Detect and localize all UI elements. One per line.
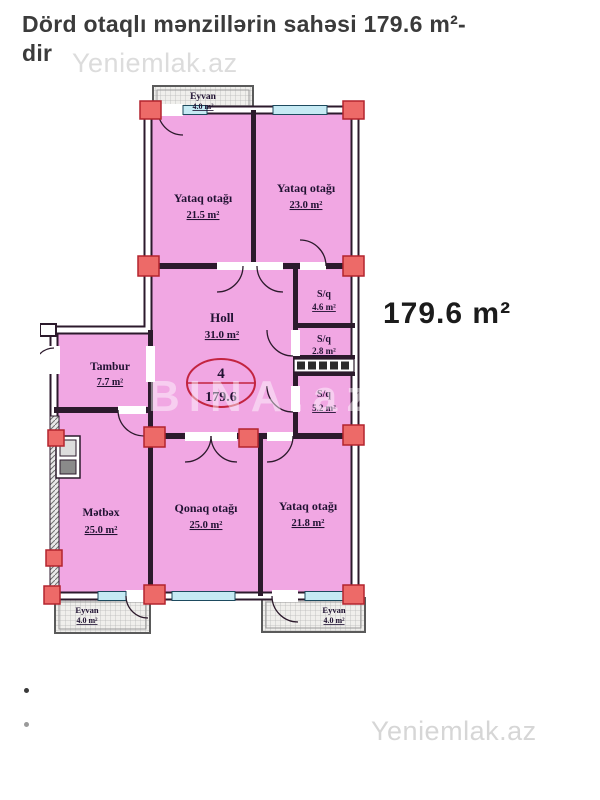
room-area: 23.0 m² bbox=[290, 200, 323, 211]
stamp-rooms-count: 4 bbox=[217, 366, 225, 382]
room-area: 2.8 m² bbox=[312, 346, 336, 356]
room-area: 21.5 m² bbox=[187, 210, 220, 221]
area-stamp: 4 179.6 bbox=[187, 359, 255, 407]
room-name: Qonaq otağı bbox=[174, 501, 238, 515]
room-name: Yataq otağı bbox=[279, 499, 338, 513]
room-name: Yataq otağı bbox=[277, 181, 336, 195]
room-area: 25.0 m² bbox=[85, 525, 118, 536]
floor-plan: 4 179.6 Eyvan 4.0 m² Yataq otağı 21.5 m²… bbox=[40, 80, 370, 640]
room-name: Yataq otağı bbox=[174, 191, 233, 205]
page-title: Dörd otaqlı mənzillərin sahəsi 179.6 m²-… bbox=[22, 10, 587, 69]
page-title-line1: Dörd otaqlı mənzillərin sahəsi 179.6 m²- bbox=[22, 10, 587, 39]
room-area: 5.2 m² bbox=[312, 403, 336, 413]
bullet-dot bbox=[24, 722, 29, 727]
room-area: 7.7 m² bbox=[97, 377, 123, 388]
stamp-total-area: 179.6 bbox=[205, 390, 237, 405]
room-area: 4.0 m² bbox=[192, 102, 214, 111]
room-name: S/q bbox=[317, 334, 331, 345]
room-area: 4.0 m² bbox=[323, 616, 345, 625]
room-name: Eyvan bbox=[322, 605, 345, 615]
room-name: Eyvan bbox=[75, 605, 98, 615]
room-name: S/q bbox=[317, 389, 331, 400]
room-name: Mətbəx bbox=[82, 507, 119, 519]
room-area: 4.6 m² bbox=[312, 302, 336, 312]
room-area: 25.0 m² bbox=[190, 520, 223, 531]
floor-plan-drawing: 4 179.6 Eyvan 4.0 m² Yataq otağı 21.5 m²… bbox=[40, 80, 370, 640]
room-name: Holl bbox=[210, 310, 234, 325]
page-title-line2: dir bbox=[22, 39, 587, 68]
room-name: Eyvan bbox=[190, 92, 217, 102]
room-area: 21.8 m² bbox=[292, 518, 325, 529]
room-area: 31.0 m² bbox=[205, 329, 240, 341]
watermark-bottom: Yeniemlak.az bbox=[371, 716, 537, 747]
room-name: S/q bbox=[317, 289, 331, 300]
bullet-dot bbox=[24, 688, 29, 693]
room-name: Tambur bbox=[90, 361, 130, 373]
room-area: 4.0 m² bbox=[76, 616, 98, 625]
total-area-callout: 179.6 m² bbox=[383, 297, 511, 331]
wardrobe-strip bbox=[294, 359, 354, 372]
